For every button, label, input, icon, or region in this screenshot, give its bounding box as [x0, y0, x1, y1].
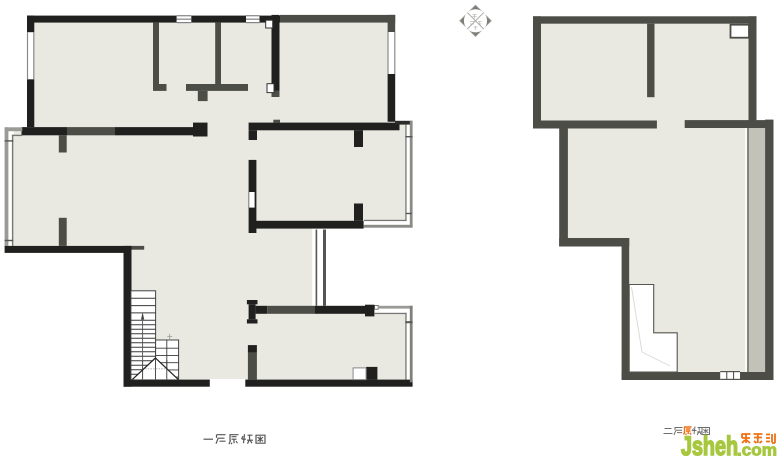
svg-text:Jsheh: Jsheh [681, 431, 738, 459]
svg-text:.com: .com [737, 442, 777, 459]
